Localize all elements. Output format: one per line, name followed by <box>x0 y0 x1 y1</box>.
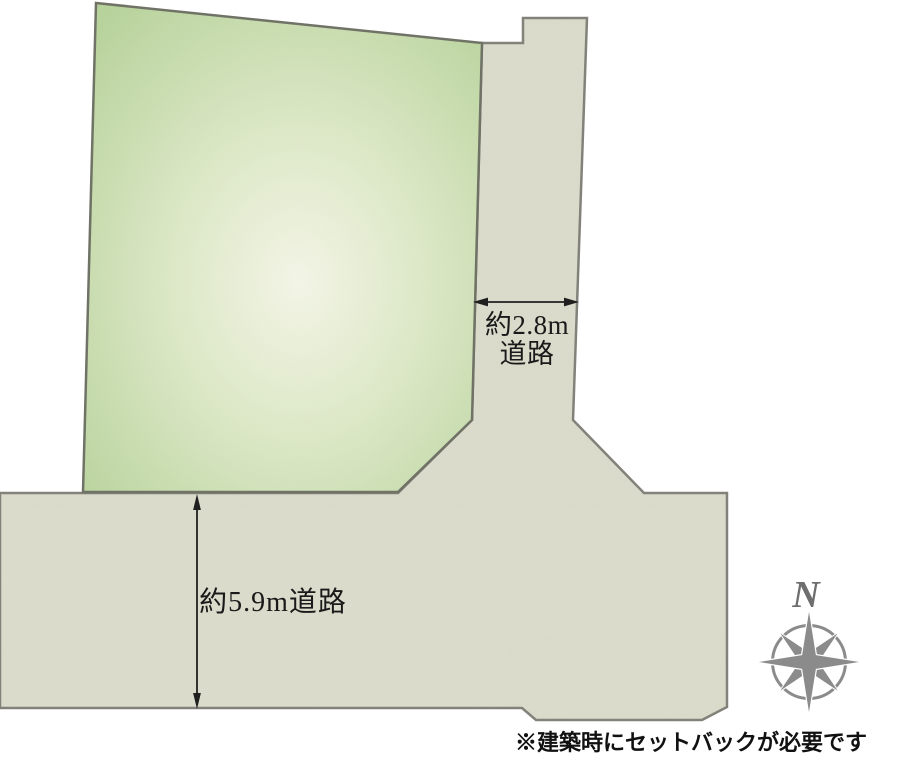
site-plan-page: 約2.8m 道路 約5.9m道路 N ※建築時にセットバックが必要です <box>0 0 900 761</box>
setback-note: ※建築時にセットバックが必要です <box>515 730 867 755</box>
compass-north-label: N <box>791 574 821 616</box>
compass-rose: N <box>755 574 863 716</box>
south-road-label: 約5.9m道路 <box>199 586 347 618</box>
east-road-label-line1: 約2.8m <box>485 310 569 340</box>
east-road-label-line2: 道路 <box>500 339 555 369</box>
compass-star-cardinal <box>755 608 863 716</box>
site-plan-drawing: 約2.8m 道路 約5.9m道路 N ※建築時にセットバックが必要です <box>0 0 900 761</box>
